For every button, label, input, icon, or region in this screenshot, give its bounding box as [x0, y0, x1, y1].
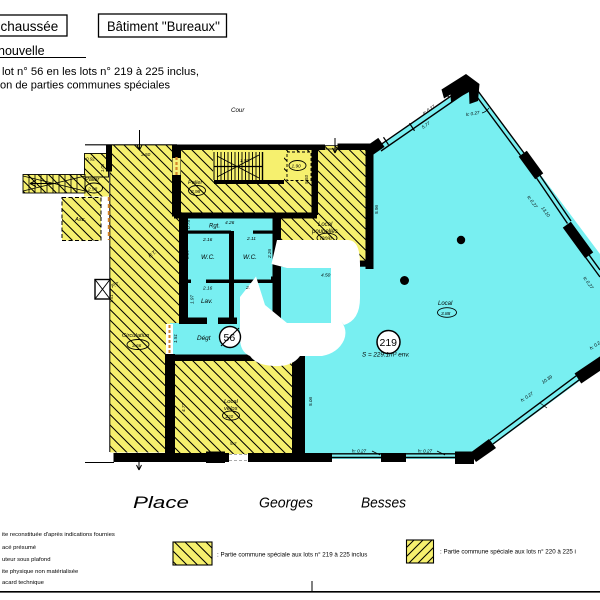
svg-text:Bâtiment ''Bureaux'': Bâtiment ''Bureaux'' — [107, 19, 220, 34]
svg-text:2.: 2. — [245, 285, 250, 291]
svg-text:1.51: 1.51 — [173, 334, 178, 343]
svg-text:4.77: 4.77 — [181, 403, 186, 412]
svg-text:2.28: 2.28 — [185, 250, 190, 260]
svg-text:3.66: 3.66 — [132, 343, 142, 349]
svg-text:2.98: 2.98 — [190, 189, 201, 195]
svg-text:Besses: Besses — [361, 495, 406, 512]
svg-text:Lav.: Lav. — [201, 298, 213, 305]
svg-text:ite reconstituée d'après indic: ite reconstituée d'après indications fou… — [2, 532, 115, 538]
svg-text:acé présumé: acé présumé — [2, 545, 37, 551]
svg-text:2.11: 2.11 — [246, 236, 256, 242]
svg-text:lot n° 56 en les lots n° 219 à: lot n° 56 en les lots n° 219 à 225 inclu… — [2, 66, 199, 78]
svg-text:1.97: 1.97 — [190, 295, 195, 304]
svg-text:219: 219 — [380, 337, 398, 349]
svg-text:Palier: Palier — [85, 177, 100, 183]
svg-text:Cour: Cour — [231, 107, 245, 114]
svg-text:2.98: 2.98 — [87, 187, 98, 193]
svg-text:3.88: 3.88 — [441, 311, 451, 317]
svg-text:h: 0.27: h: 0.27 — [418, 449, 432, 454]
svg-text:Circulation: Circulation — [122, 333, 149, 339]
svg-text:2.26: 2.26 — [267, 249, 272, 259]
svg-text:5.06: 5.06 — [308, 397, 313, 406]
svg-text:2.16: 2.16 — [202, 286, 213, 292]
svg-text:0.92: 0.92 — [86, 157, 95, 162]
svg-text:0.75: 0.75 — [186, 220, 191, 229]
svg-text:Asc.: Asc. — [74, 217, 86, 223]
svg-text:Dégt: Dégt — [197, 335, 211, 342]
svg-text:1.51: 1.51 — [109, 294, 114, 303]
svg-text:3.50: 3.50 — [141, 152, 151, 158]
svg-text:acard technique: acard technique — [2, 580, 45, 586]
svg-text:1.90: 1.90 — [292, 164, 302, 170]
svg-text:Local: Local — [438, 301, 453, 307]
svg-text:1.05: 1.05 — [100, 163, 105, 172]
svg-text:Local: Local — [224, 399, 239, 405]
svg-text:-chaussée: -chaussée — [0, 19, 58, 34]
svg-text:Rgt.: Rgt. — [209, 224, 220, 230]
svg-text:5.96: 5.96 — [374, 205, 379, 214]
svg-text:ite physique non matérialisée: ite physique non matérialisée — [2, 569, 79, 575]
svg-text:S = 229.1m² env.: S = 229.1m² env. — [362, 352, 410, 359]
svg-text:1.92: 1.92 — [240, 158, 249, 163]
svg-text:Georges: Georges — [259, 495, 313, 512]
svg-text:Local: Local — [318, 222, 333, 228]
svg-text:2.16: 2.16 — [202, 237, 213, 243]
svg-text:uteur sous plafond: uteur sous plafond — [2, 557, 50, 563]
svg-text:4.50: 4.50 — [321, 273, 331, 279]
svg-text:nouvelle: nouvelle — [0, 44, 45, 58]
svg-text:5.2: 5.2 — [230, 441, 237, 446]
svg-text:: Partie commune spéciale aux: : Partie commune spéciale aux lots n° 22… — [440, 549, 576, 556]
svg-text:W.C.: W.C. — [201, 254, 215, 261]
svg-text:: Partie commune spéciale aux: : Partie commune spéciale aux lots n° 21… — [217, 552, 367, 559]
svg-text:h: 0.27: h: 0.27 — [352, 449, 366, 454]
svg-text:5.93: 5.93 — [304, 175, 309, 184]
svg-text:220: 220 — [225, 414, 234, 419]
svg-text:4.26: 4.26 — [225, 220, 235, 226]
svg-text:Place: Place — [133, 494, 189, 512]
svg-text:on de parties communes spécial: on de parties communes spéciales — [0, 80, 171, 92]
svg-text:W.C.: W.C. — [243, 254, 257, 261]
